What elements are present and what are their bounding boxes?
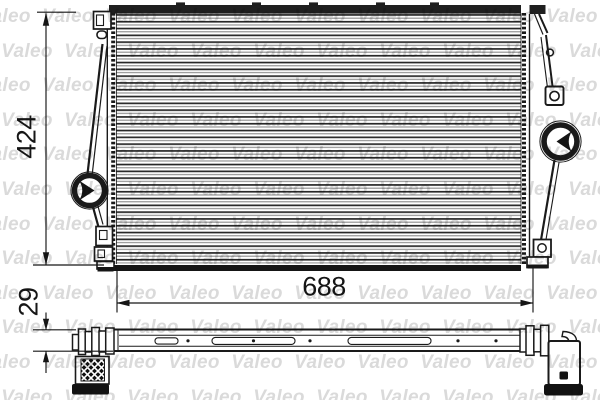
part-drawing (0, 0, 600, 400)
bottom-band (112, 265, 521, 271)
dimension-label-depth: 29 (14, 287, 45, 316)
top-header-band (109, 5, 521, 14)
left-mount-hatch (81, 359, 105, 381)
dimension-label-width: 688 (302, 272, 346, 303)
dim-height-arrow (33, 12, 104, 265)
right-fitting (520, 325, 583, 395)
right-tank (527, 14, 581, 269)
mounting-slot (97, 31, 107, 39)
dimension-label-height: 424 (12, 115, 43, 159)
technical-drawing-canvas: 424 688 29 ValeoValeoValeoValeoValeoVale… (0, 0, 600, 400)
left-mount (72, 357, 109, 395)
core-fins (116, 14, 521, 264)
front-view (107, 2, 545, 271)
side-view (72, 325, 583, 395)
